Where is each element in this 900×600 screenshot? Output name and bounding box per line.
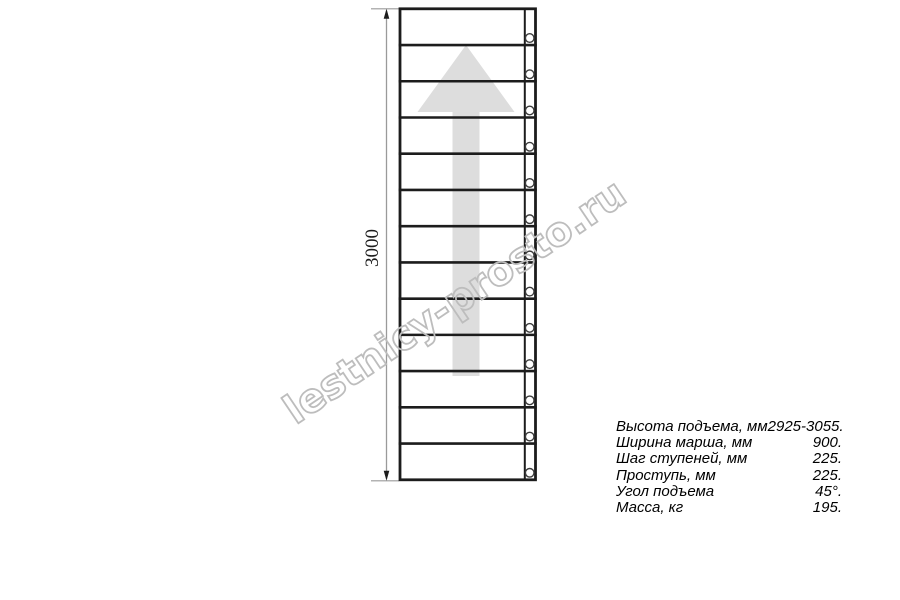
spec-label: Шаг ступеней, мм	[616, 451, 747, 467]
spec-label: Ширина марша, мм	[616, 435, 752, 451]
spec-row: Высота подъема, мм 2925-3055.	[616, 419, 842, 435]
spec-label: Проступь, мм	[616, 468, 716, 484]
bolt-circle	[525, 360, 534, 369]
specs-table: Высота подъема, мм 2925-3055. Ширина мар…	[616, 419, 842, 516]
spec-row: Масса, кг 195.	[616, 500, 842, 516]
spec-value: 2925-3055.	[768, 419, 844, 435]
bolt-circle	[525, 106, 534, 115]
spec-label: Масса, кг	[616, 500, 683, 516]
bolt-circle	[525, 396, 534, 405]
dimension-arrowhead-top	[384, 9, 390, 19]
bolt-circle	[525, 70, 534, 79]
bolt-circle	[525, 287, 534, 296]
bolt-circle	[525, 142, 534, 151]
spec-row: Ширина марша, мм 900.	[616, 435, 842, 451]
bolt-circle	[525, 469, 534, 478]
bolt-circle	[525, 34, 534, 43]
spec-value: 900.	[813, 435, 842, 451]
page-canvas: 3000 lestnicy-prosto.ru Высота подъема, …	[0, 0, 900, 600]
bolt-circle	[525, 324, 534, 333]
spec-value: 225.	[813, 451, 842, 467]
spec-row: Проступь, мм 225.	[616, 468, 842, 484]
spec-value: 45°.	[815, 484, 842, 500]
spec-value: 225.	[813, 468, 842, 484]
spec-row: Угол подъема 45°.	[616, 484, 842, 500]
bolt-circle	[525, 432, 534, 441]
dimension-label: 3000	[362, 229, 384, 267]
bolt-circle	[525, 179, 534, 188]
spec-value: 195.	[813, 500, 842, 516]
dimension-arrowhead-bottom	[384, 471, 390, 481]
spec-row: Шаг ступеней, мм 225.	[616, 451, 842, 467]
spec-label: Высота подъема, мм	[616, 419, 768, 435]
spec-label: Угол подъема	[616, 484, 714, 500]
